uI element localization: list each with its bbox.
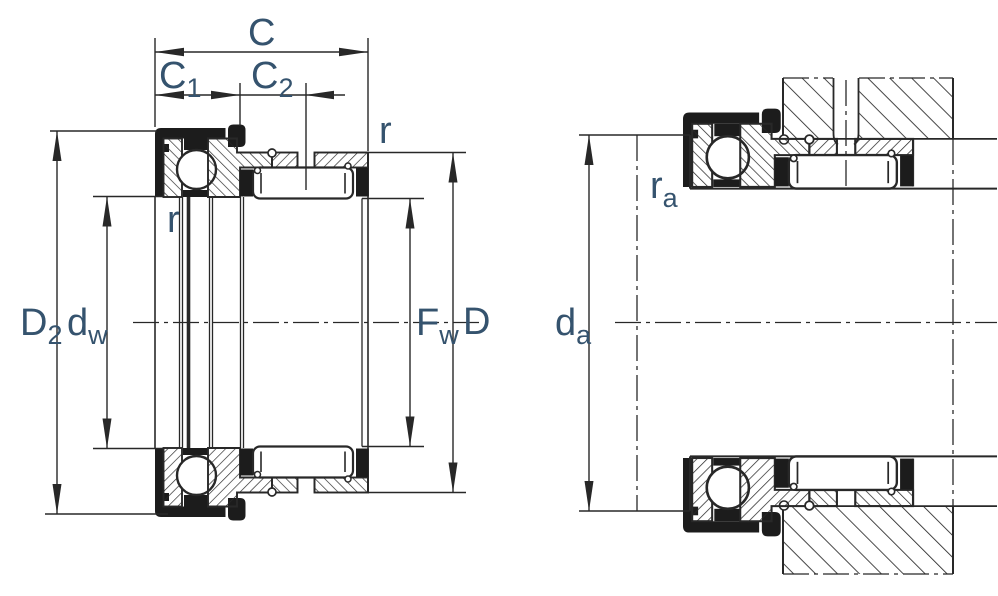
- label-da: da: [555, 302, 592, 350]
- label-ra: ra: [650, 165, 679, 213]
- housing-bottom: [783, 506, 953, 574]
- dimensions-left-view: [45, 38, 466, 514]
- label-r-inner: r: [167, 199, 180, 241]
- label-c1: C1: [159, 55, 201, 103]
- left-view-free-bearing: C C1 C2 r r D2 dw Fw D: [20, 12, 490, 521]
- label-c2: C2: [251, 55, 293, 103]
- bearing-dimension-drawing: C C1 C2 r r D2 dw Fw D: [0, 0, 998, 596]
- label-d: D: [463, 301, 490, 343]
- label-d2: D2: [20, 302, 62, 350]
- label-r-outer: r: [379, 110, 392, 152]
- drawing-canvas: C C1 C2 r r D2 dw Fw D: [0, 0, 998, 596]
- label-dw: dw: [67, 302, 108, 350]
- right-view-mounted-bearing: ra da: [555, 78, 997, 575]
- label-c: C: [248, 12, 275, 54]
